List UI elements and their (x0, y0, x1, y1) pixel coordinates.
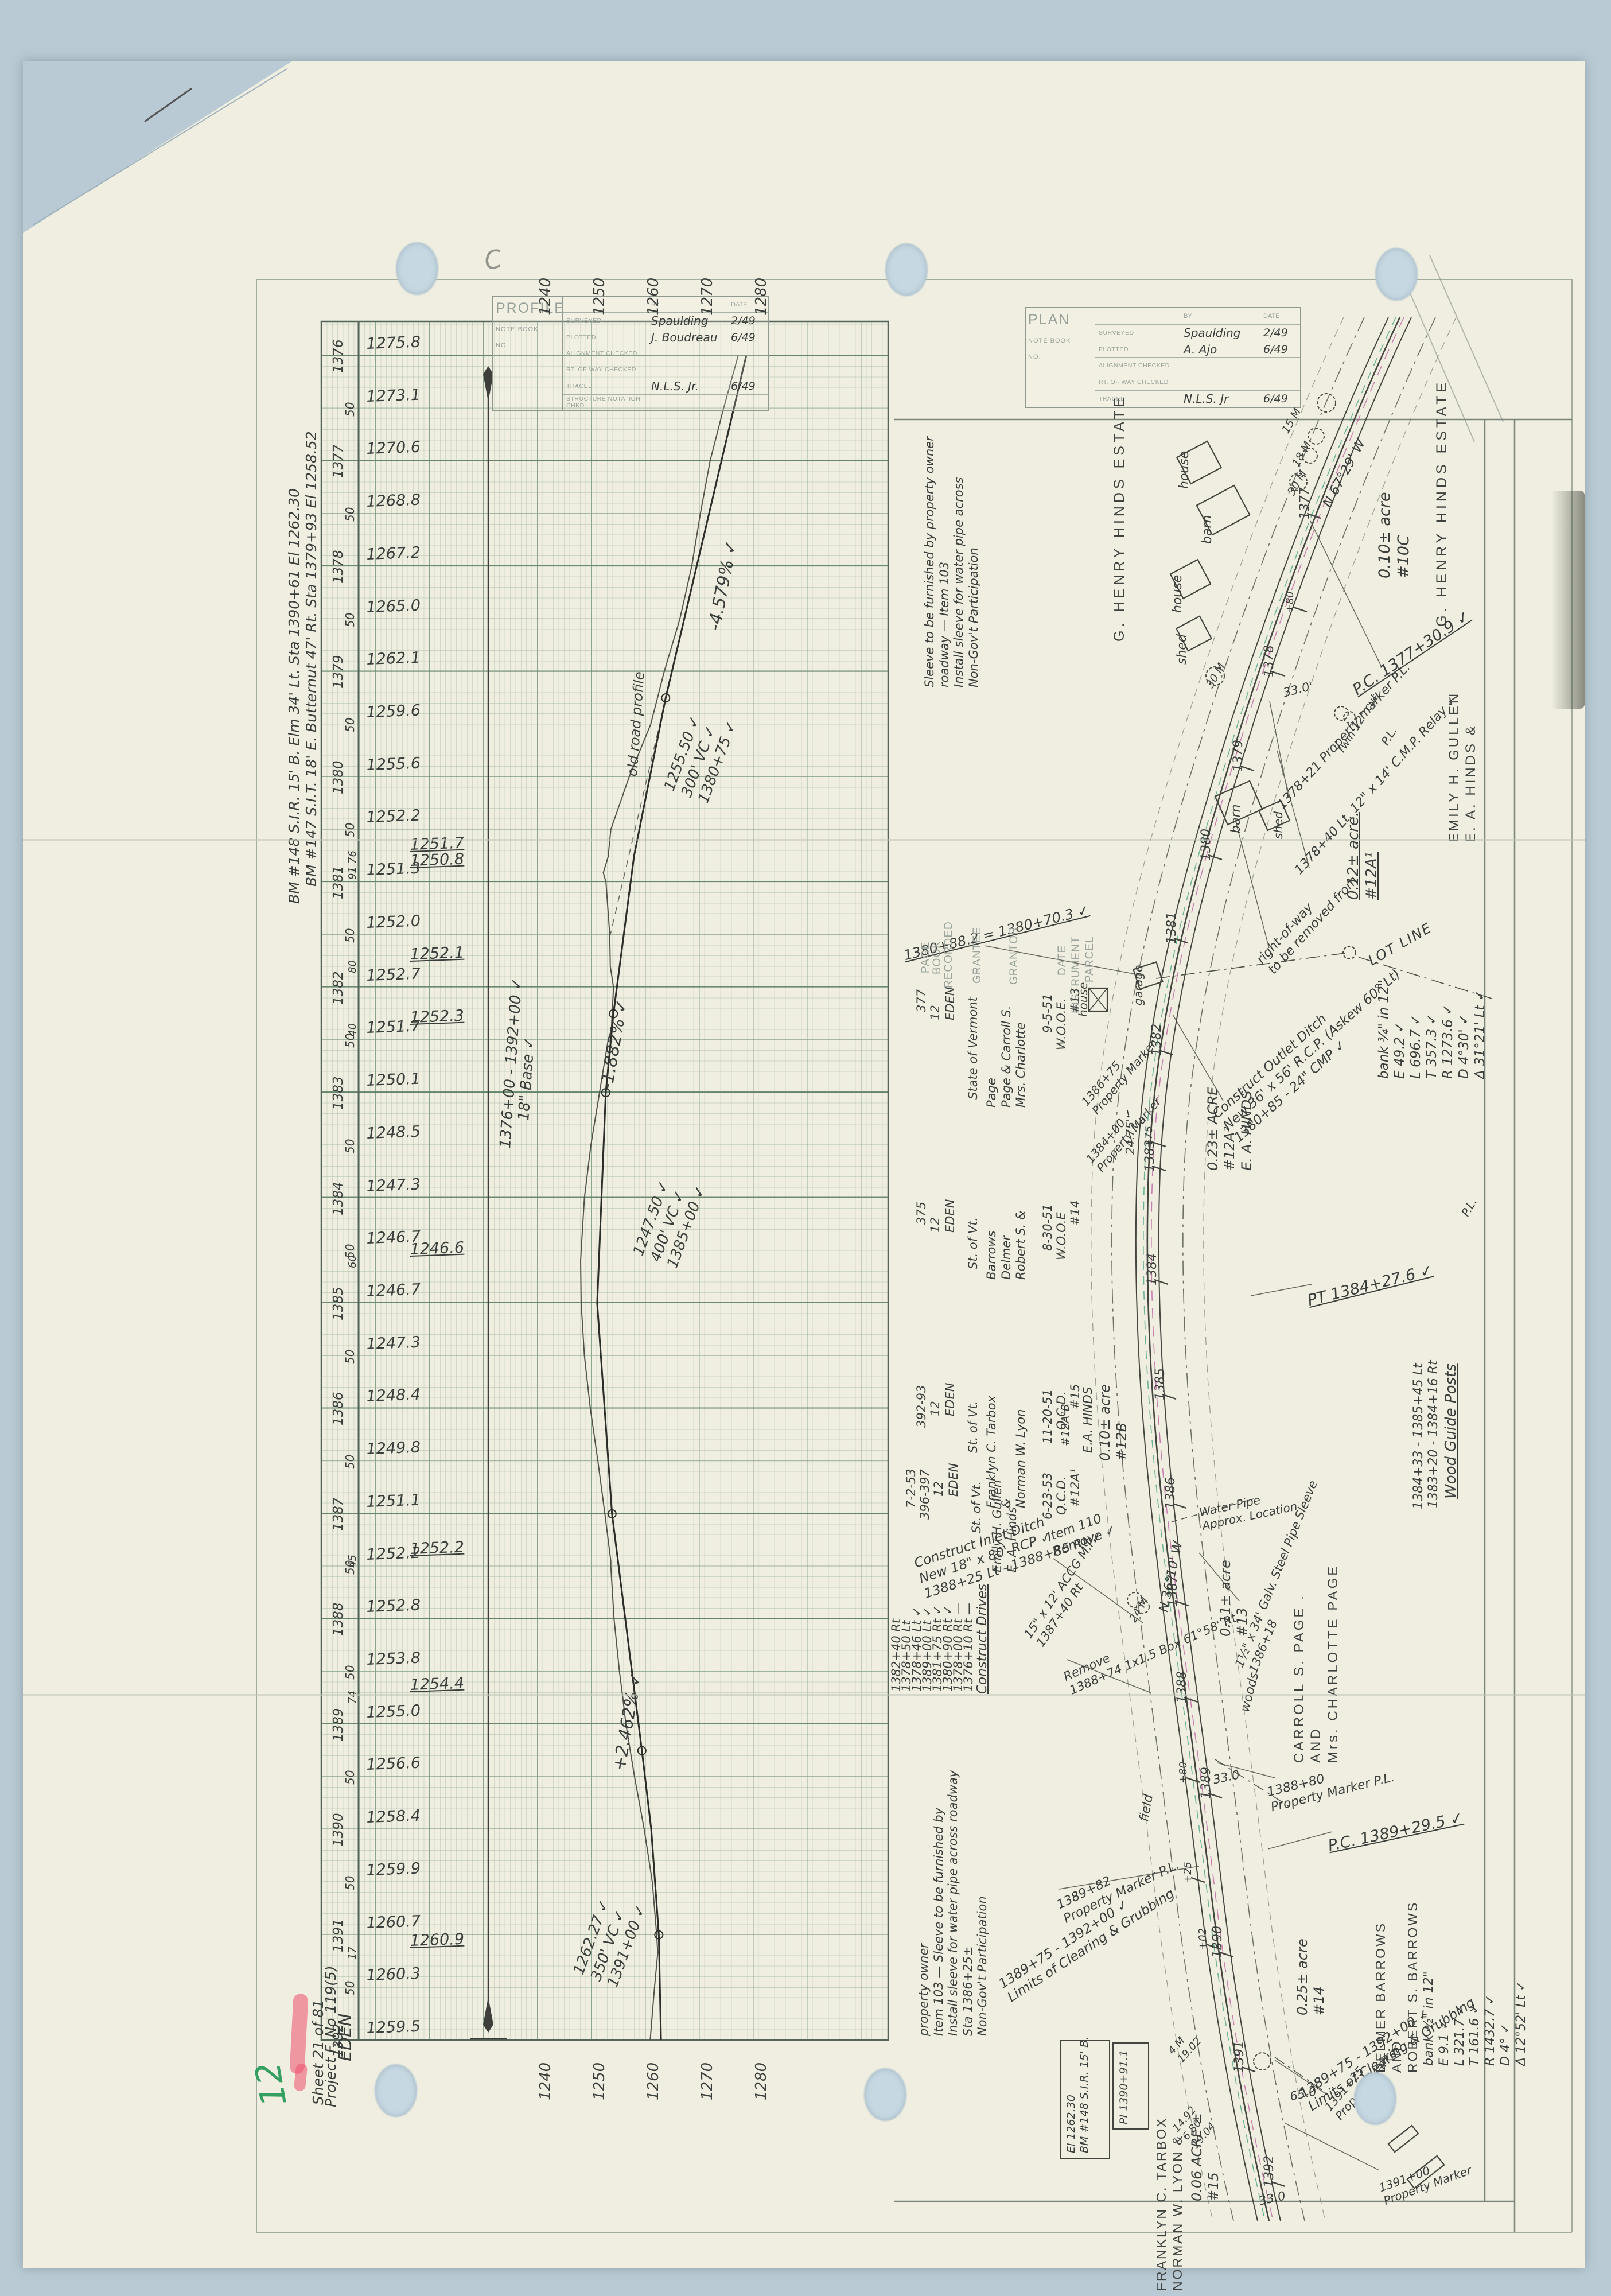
title-row-plotted: PLOTTEDJ. Boudreau6/49 (563, 329, 768, 345)
profile-block-title: PROFILE (496, 300, 560, 317)
row-date: DATE (731, 301, 768, 308)
row-by: Spaulding (651, 314, 731, 328)
row-by: N.L.S. Jr (1184, 392, 1263, 406)
title-row-header: BYDATE (563, 297, 768, 313)
title-row-traced: TRACEDN.L.S. Jr6/49 (1095, 391, 1300, 407)
punch-hole (375, 2064, 417, 2117)
row-by: N.L.S. Jr. (651, 379, 731, 393)
title-row-header: BYDATE (1095, 308, 1300, 325)
row-label: SURVEYED (1095, 329, 1184, 336)
profile-title-left: PROFILE NOTE BOOK NO. (493, 297, 563, 410)
row-label: ALIGNMENT CHECKED (1095, 362, 1184, 369)
title-row-traced: TRACEDN.L.S. Jr.6/49 (563, 378, 768, 394)
title-row-rt-of-way-checked: RT. OF WAY CHECKED (563, 362, 768, 378)
row-date: 2/49 (1263, 327, 1300, 339)
row-label: SURVEYED (563, 317, 651, 324)
row-date: DATE (1263, 313, 1300, 320)
row-date: 6/49 (731, 380, 768, 393)
row-date: 6/49 (1263, 343, 1300, 356)
punch-hole (1375, 248, 1418, 301)
plan-title-block: PLAN NOTE BOOK NO. BYDATESURVEYEDSpauldi… (1025, 307, 1301, 408)
row-label: TRACED (563, 383, 651, 390)
row-date: 6/49 (731, 331, 768, 344)
title-row-alignment-checked: ALIGNMENT CHECKED (1095, 358, 1300, 374)
plan-title-rows: BYDATESURVEYEDSpaulding2/49PLOTTEDA. Ajo… (1095, 308, 1300, 407)
row-label: PLOTTED (1095, 346, 1184, 353)
row-label: TRACED (1095, 395, 1184, 402)
punch-hole (1354, 2072, 1396, 2125)
row-label: RT. OF WAY CHECKED (1095, 379, 1184, 386)
no-label: NO. (496, 342, 560, 349)
row-by: Spaulding (1184, 326, 1263, 340)
row-date: 2/49 (731, 314, 768, 327)
punch-hole (885, 243, 928, 296)
plan-title-left: PLAN NOTE BOOK NO. (1026, 308, 1095, 407)
scan-shadow (1551, 491, 1585, 709)
paper-crease (23, 839, 1585, 841)
profile-grid-paper (321, 321, 888, 2040)
row-date: 6/49 (1263, 393, 1300, 405)
no-label: NO. (1028, 353, 1092, 360)
note-book-label: NOTE BOOK (1028, 337, 1092, 344)
title-row-surveyed: SURVEYEDSpaulding2/49 (1095, 325, 1300, 341)
row-label: ALIGNMENT CHECKED (563, 350, 651, 357)
row-label: STRUCTURE NOTATION CHKD. (563, 395, 651, 409)
title-row-plotted: PLOTTEDA. Ajo6/49 (1095, 341, 1300, 358)
punch-hole (864, 2068, 906, 2121)
profile-title-block: PROFILE NOTE BOOK NO. BYDATESURVEYEDSpau… (492, 296, 769, 411)
plan-block-title: PLAN (1028, 312, 1092, 328)
paper-crease (23, 1694, 1585, 1696)
row-label: PLOTTED (563, 334, 651, 341)
profile-title-rows: BYDATESURVEYEDSpaulding2/49PLOTTEDJ. Bou… (563, 297, 768, 410)
title-row-structure-notation-chkd-: STRUCTURE NOTATION CHKD. (563, 395, 768, 410)
row-by: J. Boudreau (651, 331, 731, 344)
row-by: A. Ajo (1184, 343, 1263, 356)
note-book-label: NOTE BOOK (496, 326, 560, 333)
punch-hole (396, 242, 438, 295)
row-by: BY (651, 301, 731, 308)
title-row-rt-of-way-checked: RT. OF WAY CHECKED (1095, 374, 1300, 391)
title-row-surveyed: SURVEYEDSpaulding2/49 (563, 313, 768, 329)
title-row-alignment-checked: ALIGNMENT CHECKED (563, 345, 768, 362)
row-by: BY (1184, 313, 1263, 320)
row-label: RT. OF WAY CHECKED (563, 366, 651, 373)
